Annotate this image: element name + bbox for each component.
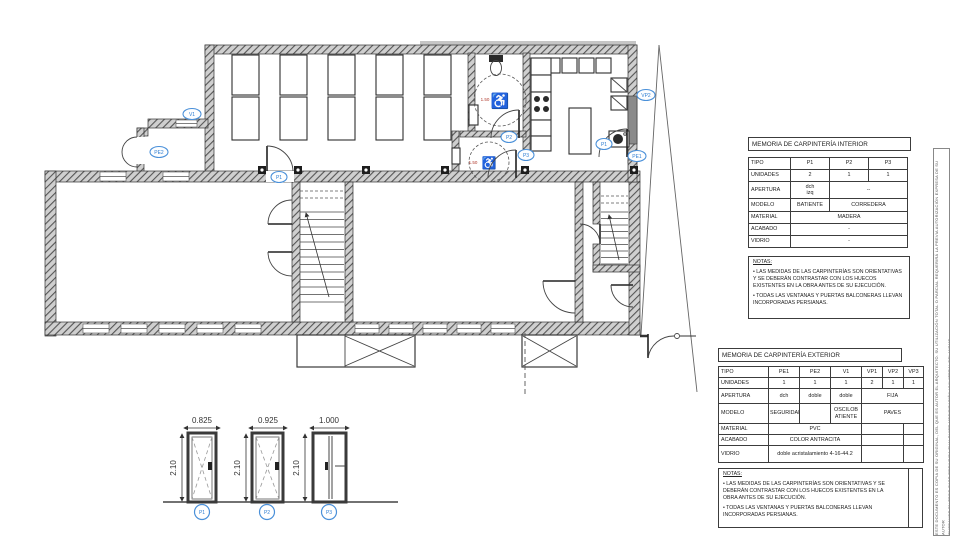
table-row: UNIDADES 2 1 1 <box>749 170 908 182</box>
desk-rows <box>232 55 451 140</box>
kitchen-island <box>569 108 591 154</box>
table-row: ACABADO - <box>749 224 908 236</box>
exterior-carpentry-table: TIPO PE1 PE2 V1 VP1 VP2 VP3 UNIDADES 1 1… <box>718 366 924 463</box>
plan-label: PE2 <box>150 147 168 158</box>
door-elevation-p3: 1.000 2.10 P3 <box>292 416 349 520</box>
svg-text:V1: V1 <box>189 112 195 118</box>
wheelchair-icon: ♿ <box>482 156 497 170</box>
accessible-wc-1: ♿ 1.50 <box>469 55 526 126</box>
svg-text:P1: P1 <box>199 510 205 516</box>
svg-text:2.10: 2.10 <box>169 460 178 476</box>
table-row: APERTURA dch doble doble FIJA <box>719 389 924 404</box>
plan-label: P2 <box>501 132 517 143</box>
note-item: • TODAS LAS VENTANAS Y PUERTAS BALCONERA… <box>753 293 905 307</box>
balcony-left <box>297 335 415 367</box>
svg-text:VP2: VP2 <box>641 93 651 99</box>
svg-text:0.825: 0.825 <box>192 416 213 425</box>
svg-text:0.925: 0.925 <box>258 416 279 425</box>
table-row: TIPO P1 P2 P3 <box>749 158 908 170</box>
door-details: 0.825 2.10 P1 0.925 2.10 P2 <box>163 416 398 520</box>
note-item: • LAS MEDIDAS DE LAS CARPINTERÍAS SON OR… <box>753 269 905 290</box>
svg-text:2.10: 2.10 <box>292 460 301 476</box>
table-row: MATERIAL PVC <box>719 424 924 435</box>
stair-right <box>601 196 628 264</box>
interior-table-title: MEMORIA DE CARPINTERÍA INTERIOR <box>748 137 911 151</box>
plan-label: V1 <box>183 109 201 120</box>
interior-notes: NOTAS: • LAS MEDIDAS DE LAS CARPINTERÍAS… <box>748 256 910 319</box>
notes-title: NOTAS: <box>723 471 918 478</box>
svg-text:2.10: 2.10 <box>233 460 242 476</box>
svg-text:P1: P1 <box>601 142 607 148</box>
svg-text:PE1: PE1 <box>632 154 642 160</box>
door-elevation-p2: 0.925 2.10 P2 <box>233 416 287 520</box>
note-item: • TODAS LAS VENTANAS Y PUERTAS BALCONERA… <box>723 505 898 519</box>
exterior-notes: NOTAS: • LAS MEDIDAS DE LAS CARPINTERÍAS… <box>718 468 923 528</box>
turning-radius-label: 1.50 <box>469 160 478 165</box>
copyright-line: QUEDANDO EN TODO CASO PROHIBIDA CUALQUIE… <box>947 149 950 535</box>
balcony-right <box>522 335 577 367</box>
svg-text:P1: P1 <box>276 175 282 181</box>
exterior-gate <box>640 334 696 359</box>
plan-label: P1 <box>596 139 612 150</box>
table-row: UNIDADES 1 1 1 2 1 1 <box>719 378 924 389</box>
copyright-strip: ESTE DOCUMENTO ES COPIA DE SU ORIGINAL, … <box>933 148 950 536</box>
svg-text:1.000: 1.000 <box>319 416 340 425</box>
exterior-table-title: MEMORIA DE CARPINTERÍA EXTERIOR <box>718 348 902 362</box>
table-row: VIDRIO doble acristalamiento 4-16-44.2 <box>719 446 924 463</box>
kitchen-furniture <box>531 58 629 154</box>
door-handle <box>325 462 328 470</box>
stove-icon <box>531 92 551 120</box>
interior-carpentry-table: TIPO P1 P2 P3 UNIDADES 2 1 1 APERTURA dc… <box>748 157 908 248</box>
plan-label: VP2 <box>637 90 655 101</box>
door-handle <box>208 462 212 470</box>
table-row: MODELO SEGURIDAD OSCILOB ATIENTE PAVES <box>719 404 924 424</box>
svg-text:P2: P2 <box>264 510 270 516</box>
notes-divider <box>908 469 909 527</box>
door-elevation-p1: 0.825 2.10 P1 <box>169 416 220 520</box>
copyright-line: ESTE DOCUMENTO ES COPIA DE SU ORIGINAL, … <box>934 149 947 535</box>
svg-text:P3: P3 <box>326 510 332 516</box>
table-row: TIPO PE1 PE2 V1 VP1 VP2 VP3 <box>719 367 924 378</box>
wheelchair-icon: ♿ <box>491 92 510 110</box>
plan-label: PE1 <box>628 151 646 162</box>
plan-label: P1 <box>271 172 287 183</box>
turning-radius-label: 1.50 <box>481 97 490 102</box>
note-item: • LAS MEDIDAS DE LAS CARPINTERÍAS SON OR… <box>723 481 898 502</box>
table-row: VIDRIO - <box>749 236 908 248</box>
svg-text:P2: P2 <box>506 135 512 141</box>
table-row: MATERIAL MADERA <box>749 212 908 224</box>
table-row: MODELO BATIENTE CORREDERA <box>749 199 908 212</box>
drawing-sheet: ♿ 1.50 ♿ 1.50 <box>0 0 980 551</box>
notes-title: NOTAS: <box>753 259 905 266</box>
table-row: APERTURA dch izq -- <box>749 182 908 199</box>
svg-text:P3: P3 <box>523 153 529 159</box>
table-row: ACABADO COLOR ANTRACITA <box>719 435 924 446</box>
plan-label: P3 <box>518 150 534 161</box>
svg-text:PE2: PE2 <box>154 150 164 156</box>
stair-left <box>300 191 344 302</box>
door-handle <box>275 462 279 470</box>
